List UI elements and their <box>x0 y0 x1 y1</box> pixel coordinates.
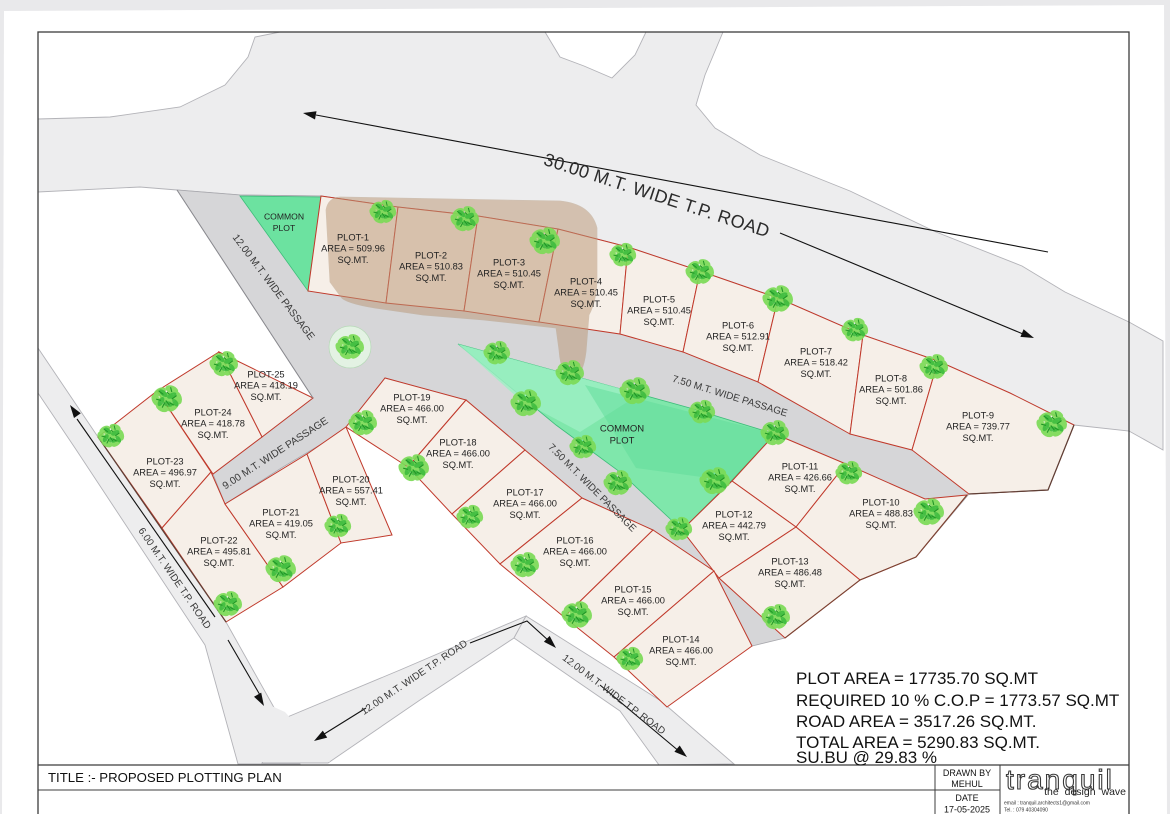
svg-text:PLOT AREA = 17735.70 SQ.MT: PLOT AREA = 17735.70 SQ.MT <box>796 669 1038 688</box>
svg-text:MEHUL: MEHUL <box>951 779 983 789</box>
svg-text:DATE: DATE <box>955 793 978 803</box>
svg-text:the design wave: the design wave <box>1044 786 1126 798</box>
svg-text:REQUIRED 10 % C.O.P = 1773.57: REQUIRED 10 % C.O.P = 1773.57 SQ.MT <box>796 691 1119 710</box>
svg-text:ROAD AREA = 3517.26 SQ.MT.: ROAD AREA = 3517.26 SQ.MT. <box>796 712 1036 731</box>
svg-text:17-05-2025: 17-05-2025 <box>944 805 990 814</box>
svg-text:Tel. : 079 40304090: Tel. : 079 40304090 <box>1004 808 1048 814</box>
svg-text:SU.BU @ 29.83 %: SU.BU @ 29.83 % <box>796 748 937 767</box>
svg-text:email : tranquil.architects1@g: email : tranquil.architects1@gmail.com <box>1004 801 1090 807</box>
svg-text:TITLE :- PROPOSED PLOTTING PLA: TITLE :- PROPOSED PLOTTING PLAN <box>48 770 282 785</box>
svg-text:DRAWN BY: DRAWN BY <box>943 768 991 778</box>
